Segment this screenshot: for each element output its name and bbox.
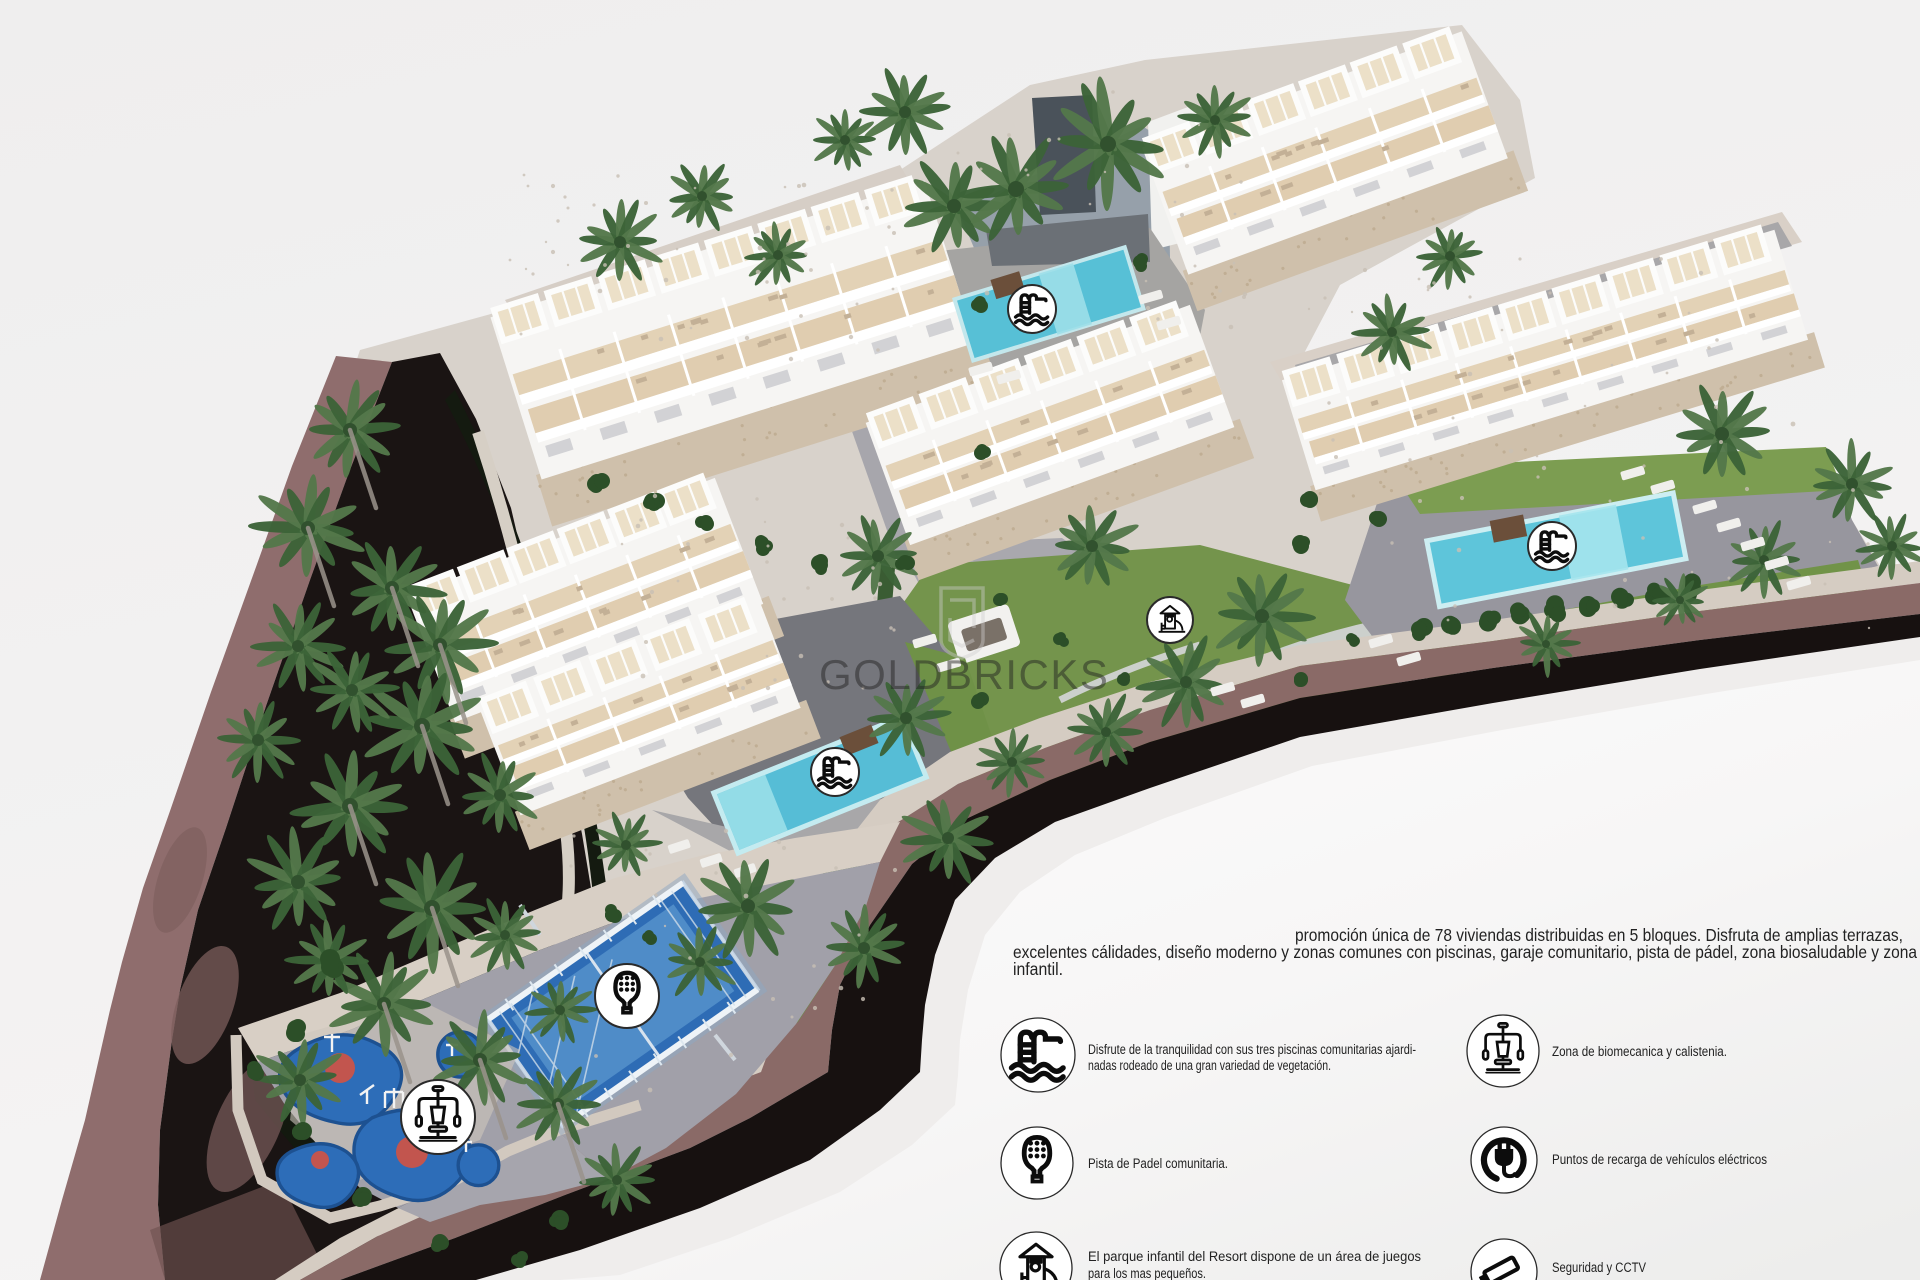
svg-text:Pista de Padel comunitaria.: Pista de Padel comunitaria. xyxy=(1088,1156,1228,1171)
svg-text:Seguridad y CCTV: Seguridad y CCTV xyxy=(1552,1260,1646,1275)
svg-text:infantil.: infantil. xyxy=(1013,959,1063,979)
svg-text:para los mas pequeños.: para los mas pequeños. xyxy=(1088,1266,1206,1280)
svg-text:Zona de biomecanica y calisten: Zona de biomecanica y calistenia. xyxy=(1552,1044,1727,1059)
svg-text:GOLDBRICKS: GOLDBRICKS xyxy=(819,651,1109,698)
svg-text:nadas rodeado de una gran vari: nadas rodeado de una gran variedad de ve… xyxy=(1088,1058,1331,1073)
svg-text:El parque infantil del Resort: El parque infantil del Resort dispone de… xyxy=(1088,1249,1421,1264)
svg-text:excelentes cálidades, diseño m: excelentes cálidades, diseño moderno y z… xyxy=(1013,942,1917,962)
svg-text:Puntos de recarga de vehículos: Puntos de recarga de vehículos eléctrico… xyxy=(1552,1152,1767,1167)
svg-text:Disfrute de la tranquilidad co: Disfrute de la tranquilidad con sus tres… xyxy=(1088,1042,1416,1057)
